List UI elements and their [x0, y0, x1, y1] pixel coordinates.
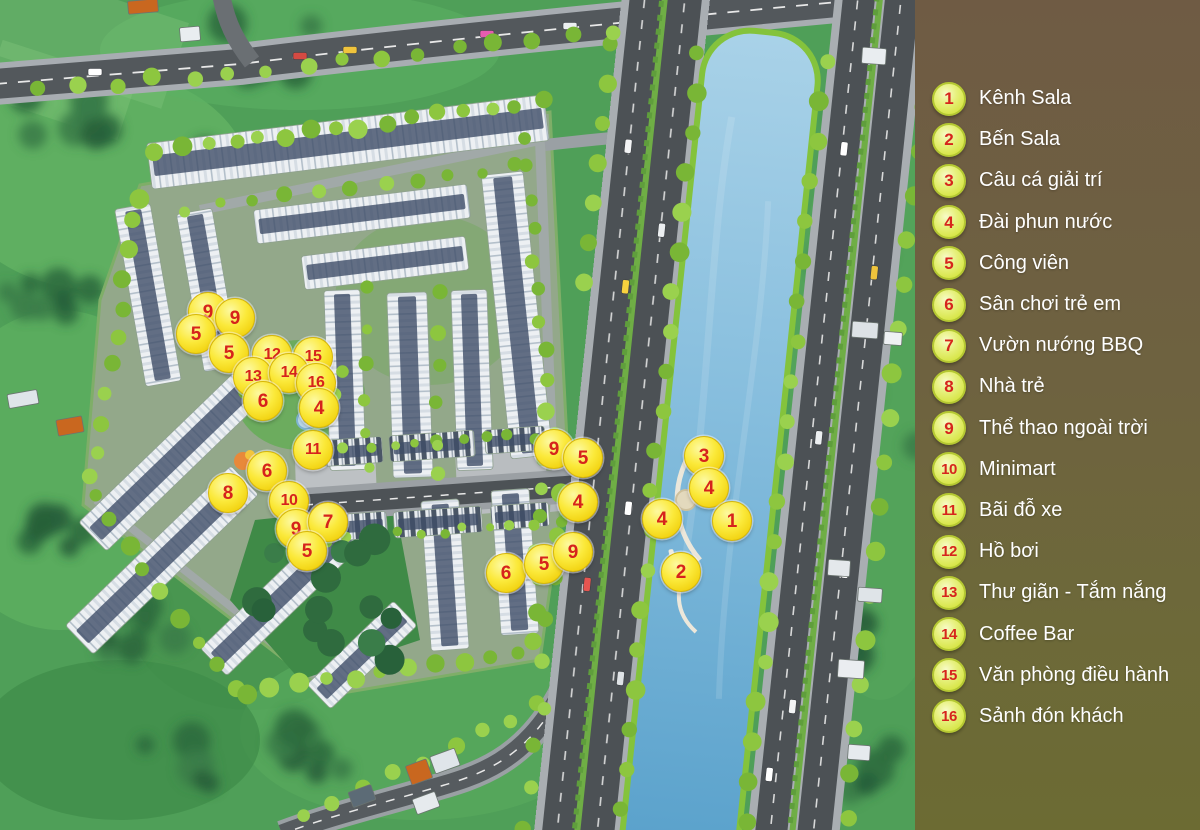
- legend-number-badge: 16: [932, 699, 966, 733]
- tree: [528, 604, 546, 622]
- house: [851, 321, 878, 339]
- legend-item-15[interactable]: 15 Văn phòng điều hành: [915, 655, 1200, 696]
- tree: [359, 356, 374, 371]
- map-marker-4[interactable]: 4: [642, 499, 682, 539]
- tree: [475, 723, 489, 737]
- tree: [30, 81, 45, 96]
- tree: [524, 633, 541, 650]
- tree: [362, 324, 372, 334]
- tree: [347, 670, 365, 688]
- tree: [606, 25, 621, 40]
- tree: [540, 373, 554, 387]
- legend-number-badge: 4: [932, 205, 966, 239]
- tree: [170, 609, 190, 629]
- tree: [391, 441, 400, 450]
- map-marker-9[interactable]: 9: [553, 532, 593, 572]
- tree: [379, 116, 396, 133]
- tree: [393, 527, 403, 537]
- car: [88, 69, 102, 76]
- tree: [457, 523, 466, 532]
- tree: [417, 530, 426, 539]
- legend-number-badge: 12: [932, 535, 966, 569]
- tree: [366, 443, 376, 453]
- tree: [124, 212, 140, 228]
- map-marker-4[interactable]: 4: [299, 388, 339, 428]
- tree: [538, 342, 554, 358]
- legend-item-7[interactable]: 7 Vườn nướng BBQ: [915, 325, 1200, 366]
- tree: [252, 598, 276, 622]
- tree: [358, 629, 386, 657]
- tree: [259, 678, 279, 698]
- tree: [504, 715, 517, 728]
- tree: [440, 529, 450, 539]
- house: [858, 587, 883, 603]
- tree: [529, 222, 542, 235]
- legend-number-badge: 3: [932, 164, 966, 198]
- legend-number-badge: 14: [932, 617, 966, 651]
- tree: [115, 302, 131, 318]
- tree: [312, 184, 326, 198]
- legend-item-11[interactable]: 11 Bãi đỗ xe: [915, 490, 1200, 531]
- tree-cluster: [24, 515, 51, 542]
- tree: [342, 181, 358, 197]
- tree: [104, 355, 121, 372]
- tree-cluster: [119, 638, 145, 664]
- map-marker-1[interactable]: 1: [712, 501, 752, 541]
- legend-number-badge: 11: [932, 493, 966, 527]
- tree: [98, 387, 112, 401]
- tree: [130, 189, 150, 209]
- tree: [525, 254, 539, 268]
- tree-cluster: [275, 709, 313, 747]
- legend-item-5[interactable]: 5 Công viên: [915, 243, 1200, 284]
- tree: [535, 91, 552, 108]
- tree: [344, 540, 371, 567]
- tree: [411, 48, 424, 61]
- tree: [528, 520, 539, 531]
- house: [884, 331, 903, 345]
- legend-number-badge: 15: [932, 658, 966, 692]
- tree: [429, 395, 443, 409]
- tree: [188, 71, 203, 86]
- tree: [90, 489, 102, 501]
- tree: [111, 330, 127, 346]
- tree: [360, 428, 370, 438]
- legend-item-14[interactable]: 14 Coffee Bar: [915, 613, 1200, 654]
- legend-number-badge: 6: [932, 288, 966, 322]
- tree: [193, 637, 205, 649]
- tree-cluster: [330, 758, 352, 780]
- legend-item-12[interactable]: 12 Hồ bơi: [915, 531, 1200, 572]
- tree-cluster: [10, 291, 40, 321]
- tree: [511, 647, 524, 660]
- tree: [209, 657, 224, 672]
- tree: [320, 672, 333, 685]
- tree: [410, 174, 425, 189]
- tree: [459, 434, 469, 444]
- tree: [432, 440, 443, 451]
- tree: [504, 520, 514, 530]
- tree: [456, 653, 474, 671]
- tree: [91, 446, 104, 459]
- tree: [501, 429, 512, 440]
- tree: [297, 809, 310, 822]
- map-marker-6[interactable]: 6: [486, 553, 526, 593]
- car: [657, 223, 665, 238]
- legend-number-badge: 10: [932, 452, 966, 486]
- tree: [442, 169, 454, 181]
- tree: [251, 131, 264, 144]
- site-plan: 9 9 5 5 12 15 13 14 16 6 4 11 6 8 10: [0, 0, 1200, 830]
- tree: [203, 137, 216, 150]
- tree: [385, 764, 401, 780]
- tree: [359, 595, 383, 619]
- car: [840, 142, 848, 157]
- legend-number-badge: 13: [932, 576, 966, 610]
- legend-item-16[interactable]: 16 Sảnh đón khách: [915, 696, 1200, 737]
- tree: [336, 53, 349, 66]
- legend-item-4[interactable]: 4 Đài phun nước: [915, 202, 1200, 243]
- car: [870, 265, 878, 280]
- tree: [120, 240, 138, 258]
- tree: [364, 462, 374, 472]
- car: [343, 47, 357, 54]
- map-marker-8[interactable]: 8: [208, 473, 248, 513]
- tree: [433, 359, 446, 372]
- map-marker-9[interactable]: 9: [215, 298, 255, 338]
- map-marker-4[interactable]: 4: [558, 482, 598, 522]
- tree: [82, 469, 98, 485]
- map-marker-11[interactable]: 11: [293, 430, 333, 470]
- tree: [121, 536, 140, 555]
- tree: [329, 121, 343, 135]
- tree: [305, 596, 333, 624]
- tree: [430, 325, 446, 341]
- car: [624, 501, 632, 516]
- legend-panel: 1 Kênh Sala 2 Bến Sala 3 Câu cá giải trí…: [915, 0, 1200, 830]
- tree-cluster: [136, 736, 154, 754]
- tree: [410, 439, 419, 448]
- tree: [220, 67, 234, 81]
- legend-list: 1 Kênh Sala 2 Bến Sala 3 Câu cá giải trí…: [915, 0, 1200, 737]
- tree: [135, 562, 149, 576]
- tree-cluster: [54, 290, 76, 312]
- tree: [429, 104, 445, 120]
- tree: [145, 143, 163, 161]
- tree: [324, 796, 339, 811]
- tree: [381, 608, 402, 629]
- tree: [518, 132, 531, 145]
- house: [179, 26, 200, 42]
- legend-number-badge: 9: [932, 411, 966, 445]
- tree-cluster: [81, 119, 112, 150]
- car: [765, 767, 773, 782]
- tree: [101, 512, 116, 527]
- tree: [519, 159, 532, 172]
- tree: [264, 543, 284, 563]
- tree: [231, 135, 245, 149]
- house: [848, 744, 871, 760]
- tree: [173, 136, 193, 156]
- car: [621, 279, 629, 294]
- legend-item-6[interactable]: 6 Sân chơi trẻ em: [915, 284, 1200, 325]
- legend-item-1[interactable]: 1 Kênh Sala: [915, 78, 1200, 119]
- map-marker-5[interactable]: 5: [563, 438, 603, 478]
- tree: [532, 282, 546, 296]
- tree-cluster: [306, 761, 328, 783]
- map-marker-2[interactable]: 2: [661, 552, 701, 592]
- house: [861, 47, 886, 65]
- tree-cluster: [59, 536, 80, 557]
- tree: [486, 523, 494, 531]
- tree: [93, 416, 109, 432]
- car: [624, 139, 632, 154]
- tree: [151, 583, 168, 600]
- car: [788, 699, 796, 714]
- tree: [348, 120, 367, 139]
- tree-cluster: [21, 273, 41, 293]
- tree: [483, 650, 497, 664]
- tree: [373, 51, 390, 68]
- tree: [404, 109, 419, 124]
- tree: [113, 270, 131, 288]
- tree: [426, 654, 444, 672]
- house: [127, 0, 158, 14]
- tree: [358, 394, 370, 406]
- tree: [487, 103, 500, 116]
- legend-item-10[interactable]: 10 Minimart: [915, 449, 1200, 490]
- tree: [537, 402, 555, 420]
- house: [837, 659, 864, 679]
- tree: [259, 66, 271, 78]
- tree: [477, 168, 487, 178]
- car: [815, 430, 823, 445]
- tree: [179, 206, 190, 217]
- legend-item-2[interactable]: 2 Bến Sala: [915, 119, 1200, 160]
- house: [827, 559, 850, 576]
- tree: [246, 195, 257, 206]
- tree: [277, 129, 295, 147]
- tree: [431, 467, 445, 481]
- tree: [526, 194, 538, 206]
- tree: [566, 27, 582, 43]
- legend-item-13[interactable]: 13 Thư giãn - Tắm nắng: [915, 572, 1200, 613]
- tree: [289, 673, 309, 693]
- car: [583, 577, 591, 592]
- tree: [481, 431, 492, 442]
- tree: [336, 365, 349, 378]
- tree: [301, 58, 318, 75]
- tree: [532, 315, 545, 328]
- map-marker-5[interactable]: 5: [287, 531, 327, 571]
- tree: [360, 280, 373, 293]
- tree-cluster: [19, 121, 47, 149]
- tree: [538, 702, 552, 716]
- tree-cluster: [193, 770, 213, 790]
- tree: [507, 100, 520, 113]
- tree: [484, 33, 502, 51]
- tree: [379, 176, 394, 191]
- tree: [110, 79, 125, 94]
- legend-number-badge: 7: [932, 329, 966, 363]
- tree: [69, 77, 86, 94]
- tree: [143, 68, 161, 86]
- tree-cluster: [159, 622, 191, 654]
- tree: [337, 442, 348, 453]
- map-marker-6[interactable]: 6: [243, 381, 283, 421]
- tree: [276, 186, 292, 202]
- tree: [317, 629, 345, 657]
- tree: [535, 482, 548, 495]
- legend-number-badge: 2: [932, 123, 966, 157]
- legend-number-badge: 8: [932, 370, 966, 404]
- car: [616, 671, 624, 686]
- tree: [237, 685, 257, 705]
- tree: [523, 33, 540, 50]
- legend-number-badge: 1: [932, 82, 966, 116]
- tree: [432, 284, 447, 299]
- tree: [302, 120, 321, 139]
- tree: [215, 197, 225, 207]
- car: [293, 53, 307, 60]
- legend-item-3[interactable]: 3 Câu cá giải trí: [915, 160, 1200, 201]
- legend-item-9[interactable]: 9 Thể thao ngoài trời: [915, 408, 1200, 449]
- legend-item-8[interactable]: 8 Nhà trẻ: [915, 366, 1200, 407]
- tree: [456, 104, 470, 118]
- tree: [453, 40, 466, 53]
- legend-number-badge: 5: [932, 246, 966, 280]
- tree-cluster: [856, 772, 879, 795]
